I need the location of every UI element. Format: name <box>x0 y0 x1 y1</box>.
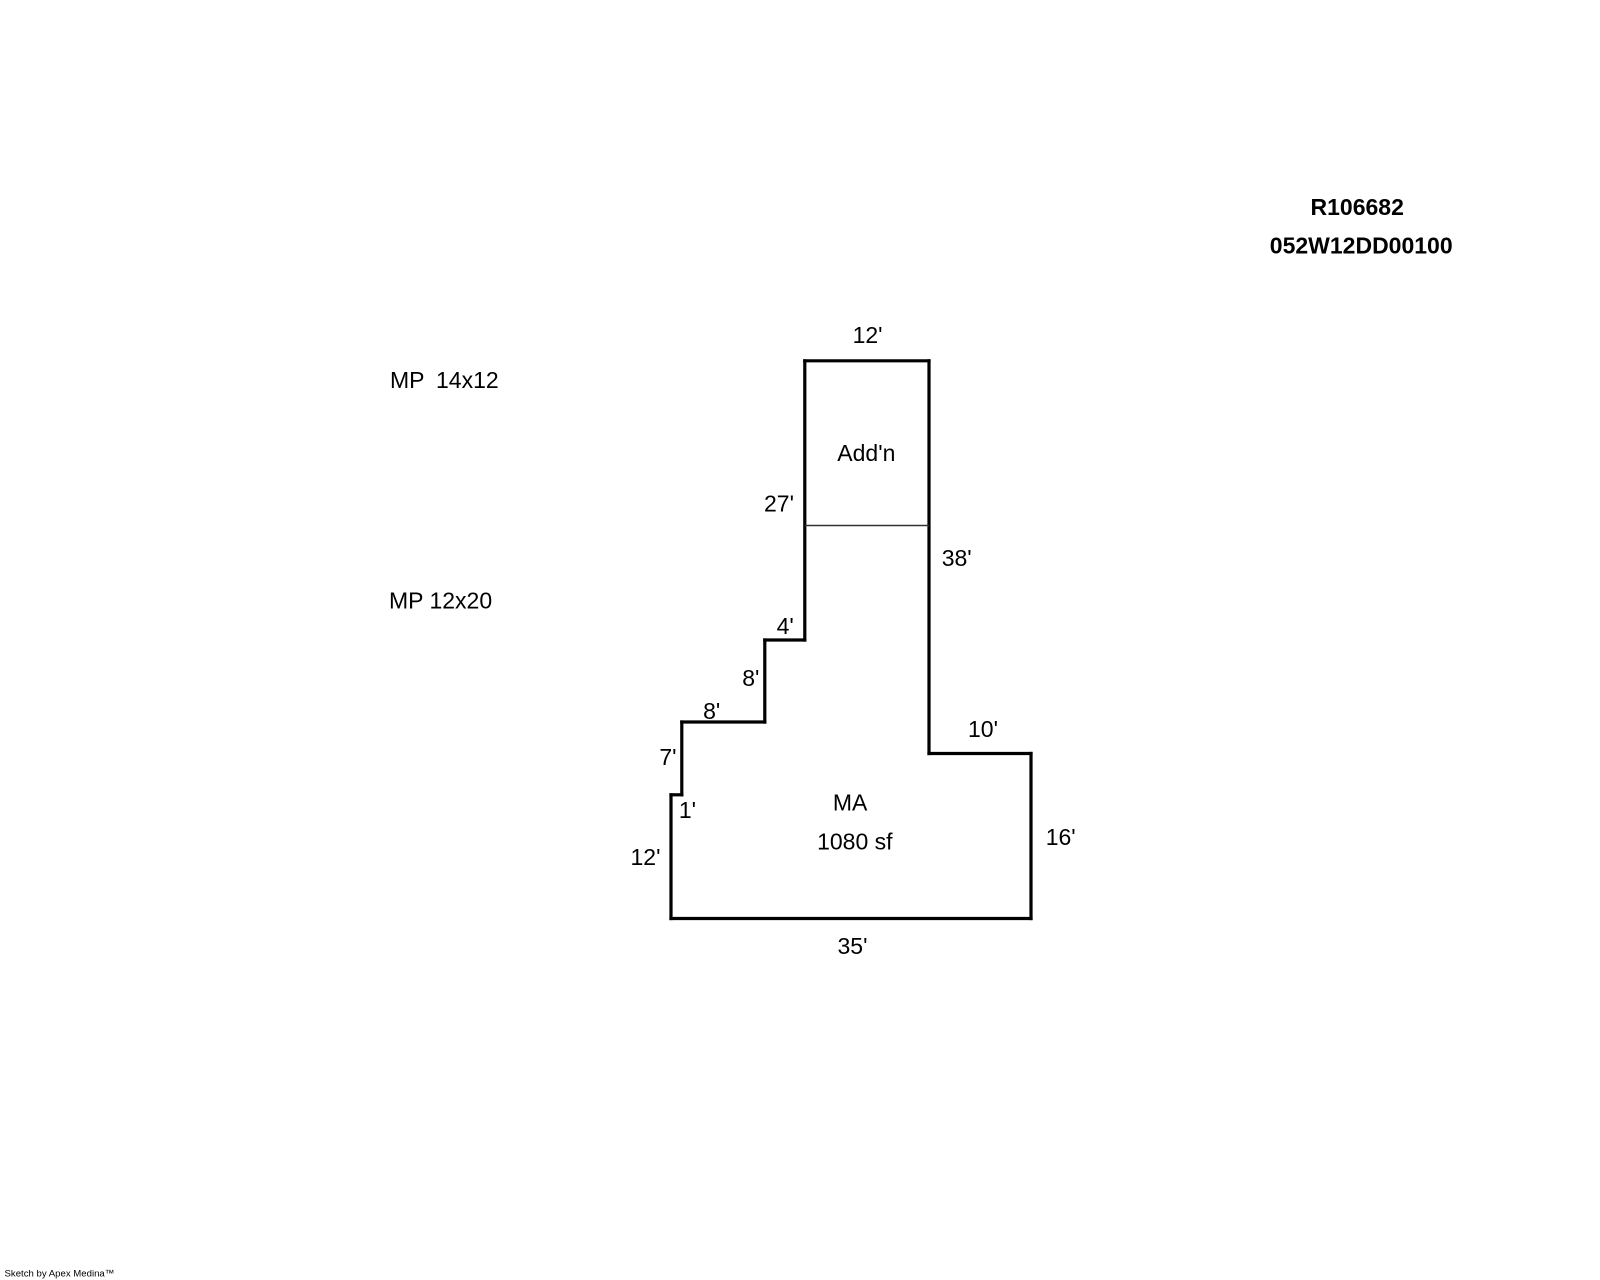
svg-text:4': 4' <box>777 613 794 639</box>
svg-text:10': 10' <box>968 716 998 742</box>
svg-text:R106682: R106682 <box>1311 194 1404 220</box>
svg-text:35': 35' <box>838 933 868 959</box>
svg-text:MA: MA <box>833 789 868 815</box>
svg-text:27': 27' <box>764 491 794 517</box>
svg-text:38': 38' <box>942 545 972 571</box>
svg-text:052W12DD00100: 052W12DD00100 <box>1270 233 1453 259</box>
svg-text:8': 8' <box>703 698 720 724</box>
svg-text:1': 1' <box>679 797 696 823</box>
svg-text:12': 12' <box>631 844 661 870</box>
svg-text:Sketch by Apex Medina™: Sketch by Apex Medina™ <box>5 1268 115 1279</box>
svg-text:14x12: 14x12 <box>436 367 499 393</box>
svg-text:Add'n: Add'n <box>837 440 895 466</box>
svg-text:12': 12' <box>853 322 883 348</box>
svg-text:1080 sf: 1080 sf <box>817 829 893 855</box>
svg-text:8': 8' <box>742 665 759 691</box>
svg-text:MP 12x20: MP 12x20 <box>389 588 492 614</box>
svg-text:MP: MP <box>390 367 425 393</box>
svg-text:16': 16' <box>1046 824 1076 850</box>
svg-text:7': 7' <box>659 744 676 770</box>
